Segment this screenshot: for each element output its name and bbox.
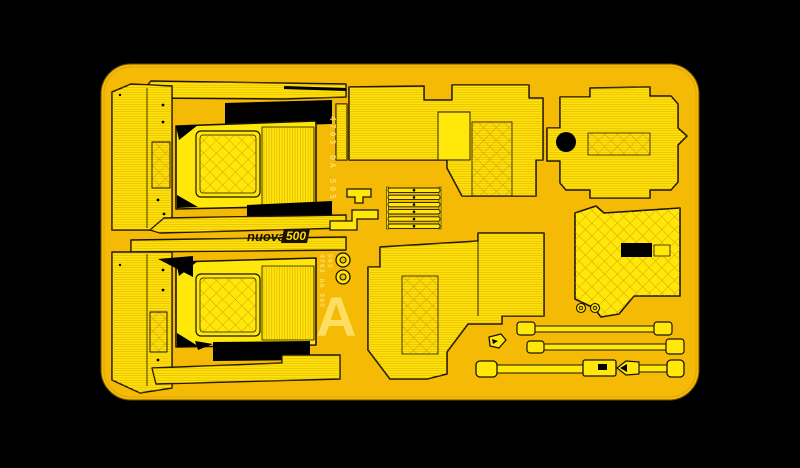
logo-script-text: nuova [247,229,285,244]
seat-assembly-bottom-left [112,237,346,393]
code-side-line2: 505 [326,254,334,269]
mat-tread-patch [402,276,438,354]
pe-fret-photo: 4703 DA 505 4703 DA 505 505 A nuova 500 [0,0,800,468]
mat-tread-patch [588,133,650,155]
fret-scene: 4703 DA 505 4703 DA 505 505 A nuova 500 [0,0,800,468]
sheet-letter-a: A [316,285,356,348]
panel-slot [150,312,167,352]
seat-side-ribbed [262,127,314,205]
mat-inset-tab [654,245,670,256]
strap-slot [598,364,607,370]
mat-inset-panel [438,112,470,160]
panel-slot [152,142,170,188]
engine-bay-mat-top-right [547,87,687,198]
cutout-rect [621,243,652,257]
mat-tread-patch [472,122,512,196]
logo-nuova500: nuova 500 [247,229,310,244]
seat-side-ribbed [262,266,314,340]
logo-number-text: 500 [286,229,306,243]
drain-hole [556,132,576,152]
code-top-vertical: 4703 DA 505 [328,116,337,202]
